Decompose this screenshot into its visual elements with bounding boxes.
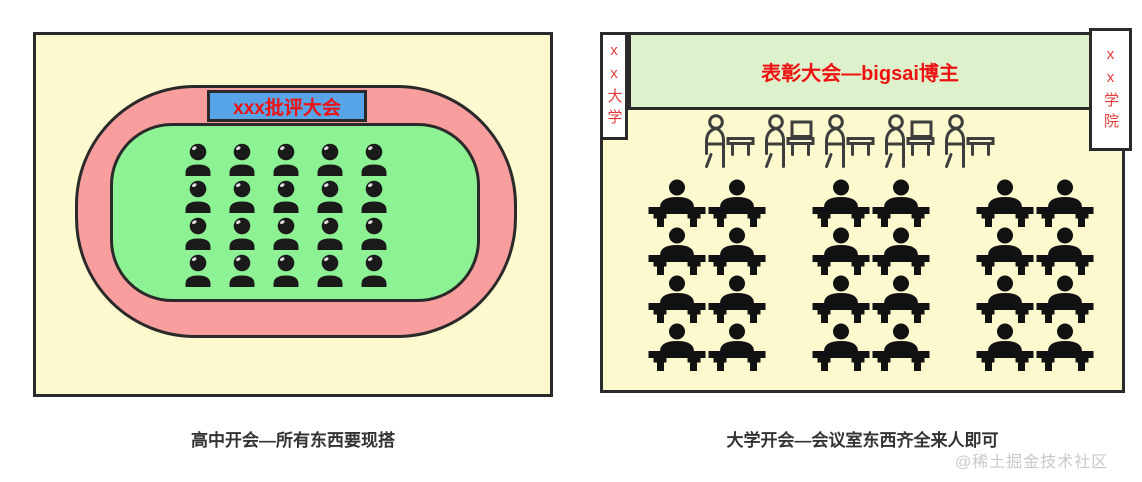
speaker-at-lectern-outline-icon (935, 113, 995, 170)
person-at-desk-icon (648, 323, 706, 371)
person-silhouette-icon (315, 217, 345, 250)
podium-speakers-row (695, 113, 995, 170)
speaker-at-lectern-outline-icon (815, 113, 875, 170)
person-silhouette-icon (359, 254, 389, 287)
person-silhouette-icon (271, 180, 301, 213)
person-at-desk-icon (1036, 179, 1094, 227)
person-at-desk-icon (648, 179, 706, 227)
left-caption: 高中开会—所有东西要现搭 (33, 426, 553, 451)
person-at-desk-icon (708, 323, 766, 371)
person-at-desk-icon (812, 275, 870, 323)
person-at-desk-icon (812, 227, 870, 275)
university-meeting-room-panel: 表彰大会—bigsai博主 xx大学 xx学院 (600, 32, 1125, 393)
audience-grid (176, 141, 396, 289)
person-silhouette-icon (227, 180, 257, 213)
person-at-desk-icon (872, 323, 930, 371)
seat-group (811, 179, 931, 371)
person-at-desk-icon (812, 179, 870, 227)
university-sign: xx大学 (600, 32, 628, 140)
criticism-meeting-banner: xxx批评大会 (207, 90, 367, 122)
diagram-canvas: { "left_figure": { "banner": "xxx批评大会", … (0, 0, 1142, 482)
person-silhouette-icon (315, 180, 345, 213)
person-at-desk-icon (1036, 323, 1094, 371)
person-silhouette-icon (315, 143, 345, 176)
person-silhouette-icon (183, 143, 213, 176)
college-sign: xx学院 (1089, 28, 1132, 151)
speaker-at-lectern-outline-icon (695, 113, 755, 170)
person-at-desk-icon (976, 275, 1034, 323)
person-at-desk-icon (872, 227, 930, 275)
seat-group (647, 179, 767, 371)
person-at-desk-icon (648, 227, 706, 275)
person-at-desk-icon (708, 179, 766, 227)
speaker-at-lectern-outline-icon (875, 113, 935, 170)
person-silhouette-icon (183, 180, 213, 213)
person-at-desk-icon (976, 179, 1034, 227)
person-at-desk-icon (976, 227, 1034, 275)
person-silhouette-icon (227, 217, 257, 250)
person-silhouette-icon (359, 143, 389, 176)
person-silhouette-icon (271, 217, 301, 250)
person-at-desk-icon (872, 179, 930, 227)
seating-area (647, 179, 1095, 371)
person-at-desk-icon (1036, 275, 1094, 323)
person-silhouette-icon (271, 254, 301, 287)
person-silhouette-icon (359, 180, 389, 213)
person-at-desk-icon (708, 227, 766, 275)
person-at-desk-icon (708, 275, 766, 323)
person-at-desk-icon (648, 275, 706, 323)
person-silhouette-icon (183, 217, 213, 250)
watermark: @稀土掘金技术社区 (955, 448, 1108, 472)
speaker-at-lectern-outline-icon (755, 113, 815, 170)
college-sign-label: xx学院 (1103, 46, 1118, 134)
person-at-desk-icon (872, 275, 930, 323)
person-silhouette-icon (183, 254, 213, 287)
highschool-field-panel: xxx批评大会 (33, 32, 553, 397)
commendation-meeting-banner: 表彰大会—bigsai博主 (628, 32, 1092, 110)
person-silhouette-icon (227, 254, 257, 287)
person-at-desk-icon (976, 323, 1034, 371)
university-sign-label: xx大学 (607, 42, 622, 130)
person-silhouette-icon (359, 217, 389, 250)
person-silhouette-icon (315, 254, 345, 287)
seat-group (975, 179, 1095, 371)
person-silhouette-icon (227, 143, 257, 176)
person-at-desk-icon (1036, 227, 1094, 275)
person-at-desk-icon (812, 323, 870, 371)
person-silhouette-icon (271, 143, 301, 176)
